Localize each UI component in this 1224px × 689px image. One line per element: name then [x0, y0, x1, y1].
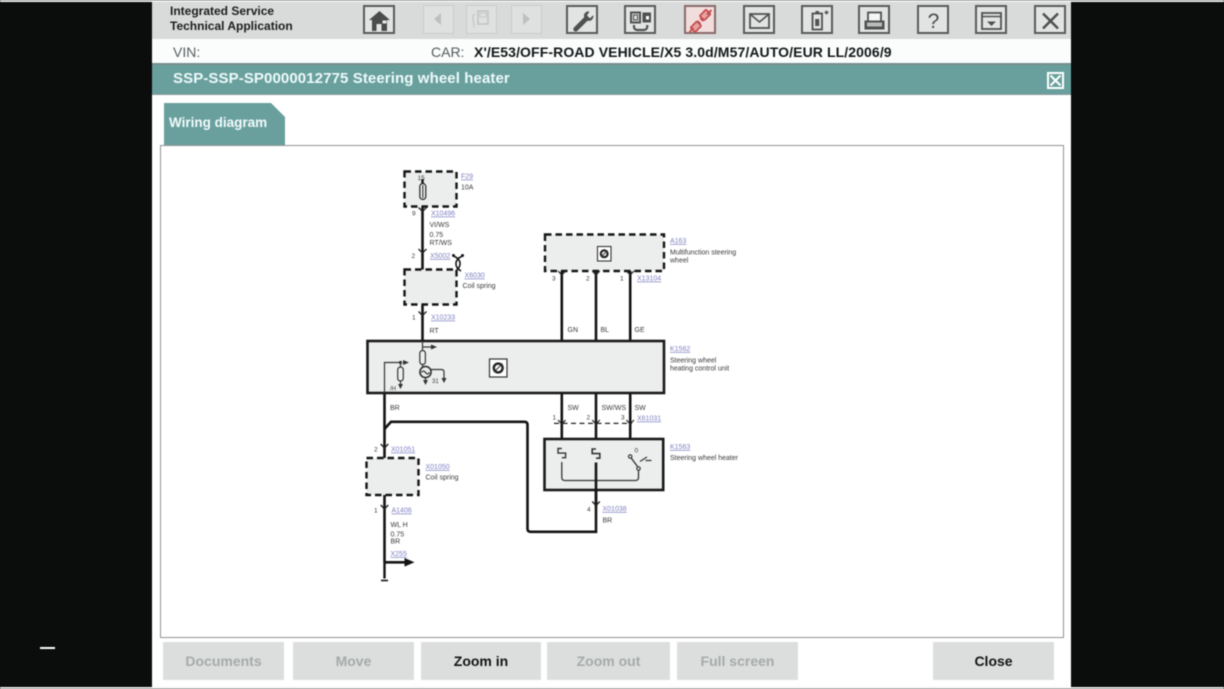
- svg-text:X13104: X13104: [637, 276, 661, 283]
- svg-text:10A: 10A: [461, 185, 474, 192]
- svg-text:2: 2: [586, 276, 590, 283]
- svg-text:3: 3: [552, 276, 556, 283]
- svg-text:2: 2: [412, 253, 416, 260]
- svg-text:RT: RT: [430, 328, 440, 335]
- svg-text:K1562: K1562: [670, 346, 690, 353]
- svg-text:RT/WS: RT/WS: [430, 240, 453, 247]
- svg-text:BR: BR: [603, 518, 613, 525]
- svg-text:4: 4: [587, 507, 591, 514]
- svg-text:1: 1: [412, 315, 416, 322]
- svg-text:Steering wheel heater: Steering wheel heater: [670, 455, 739, 462]
- svg-text:X10233: X10233: [431, 315, 455, 322]
- svg-text:X10496: X10496: [431, 211, 455, 218]
- svg-text:BR: BR: [391, 539, 401, 546]
- svg-text:GE: GE: [635, 327, 645, 334]
- svg-text:3: 3: [621, 415, 625, 422]
- svg-text:31: 31: [432, 379, 439, 385]
- svg-text:BR: BR: [390, 405, 400, 412]
- svg-text:2: 2: [374, 447, 378, 454]
- svg-text:Coil spring: Coil spring: [426, 475, 459, 482]
- svg-text:X01050: X01050: [426, 464, 450, 471]
- svg-text:1: 1: [620, 276, 624, 283]
- svg-text:X255: X255: [391, 551, 407, 558]
- svg-text:heating control unit: heating control unit: [670, 366, 729, 373]
- svg-text:1: 1: [374, 508, 378, 515]
- svg-text:Coil spring: Coil spring: [463, 283, 496, 290]
- svg-text:9: 9: [412, 211, 416, 218]
- svg-text:0.75: 0.75: [430, 232, 444, 239]
- svg-text:SW: SW: [568, 405, 580, 412]
- svg-text:X5002: X5002: [430, 253, 450, 260]
- svg-text:X61031: X61031: [637, 416, 661, 423]
- svg-text:GN: GN: [568, 327, 579, 334]
- svg-text:wheel: wheel: [669, 258, 689, 265]
- svg-text:BL: BL: [601, 327, 610, 334]
- svg-text:K1563: K1563: [670, 444, 690, 451]
- svg-text:/H: /H: [390, 387, 396, 393]
- svg-text:1: 1: [553, 415, 557, 422]
- svg-text:0.75: 0.75: [391, 532, 405, 539]
- svg-text:Steering wheel: Steering wheel: [670, 358, 717, 365]
- svg-text:A163: A163: [670, 238, 686, 245]
- svg-text:A1406: A1406: [392, 508, 412, 515]
- svg-text:Multifunction steering: Multifunction steering: [670, 250, 736, 257]
- svg-text:0: 0: [635, 448, 639, 455]
- svg-text:SW: SW: [635, 405, 647, 412]
- svg-text:X6030: X6030: [465, 273, 485, 280]
- svg-text:X01038: X01038: [603, 506, 627, 513]
- svg-text:2: 2: [587, 415, 591, 422]
- svg-text:VI/WS: VI/WS: [430, 222, 450, 229]
- svg-text:WL H: WL H: [391, 522, 408, 529]
- svg-text:SW/WS: SW/WS: [602, 405, 627, 412]
- svg-text:?: ?: [928, 10, 940, 33]
- svg-text:X01051: X01051: [391, 447, 415, 454]
- svg-text:F29: F29: [461, 174, 473, 181]
